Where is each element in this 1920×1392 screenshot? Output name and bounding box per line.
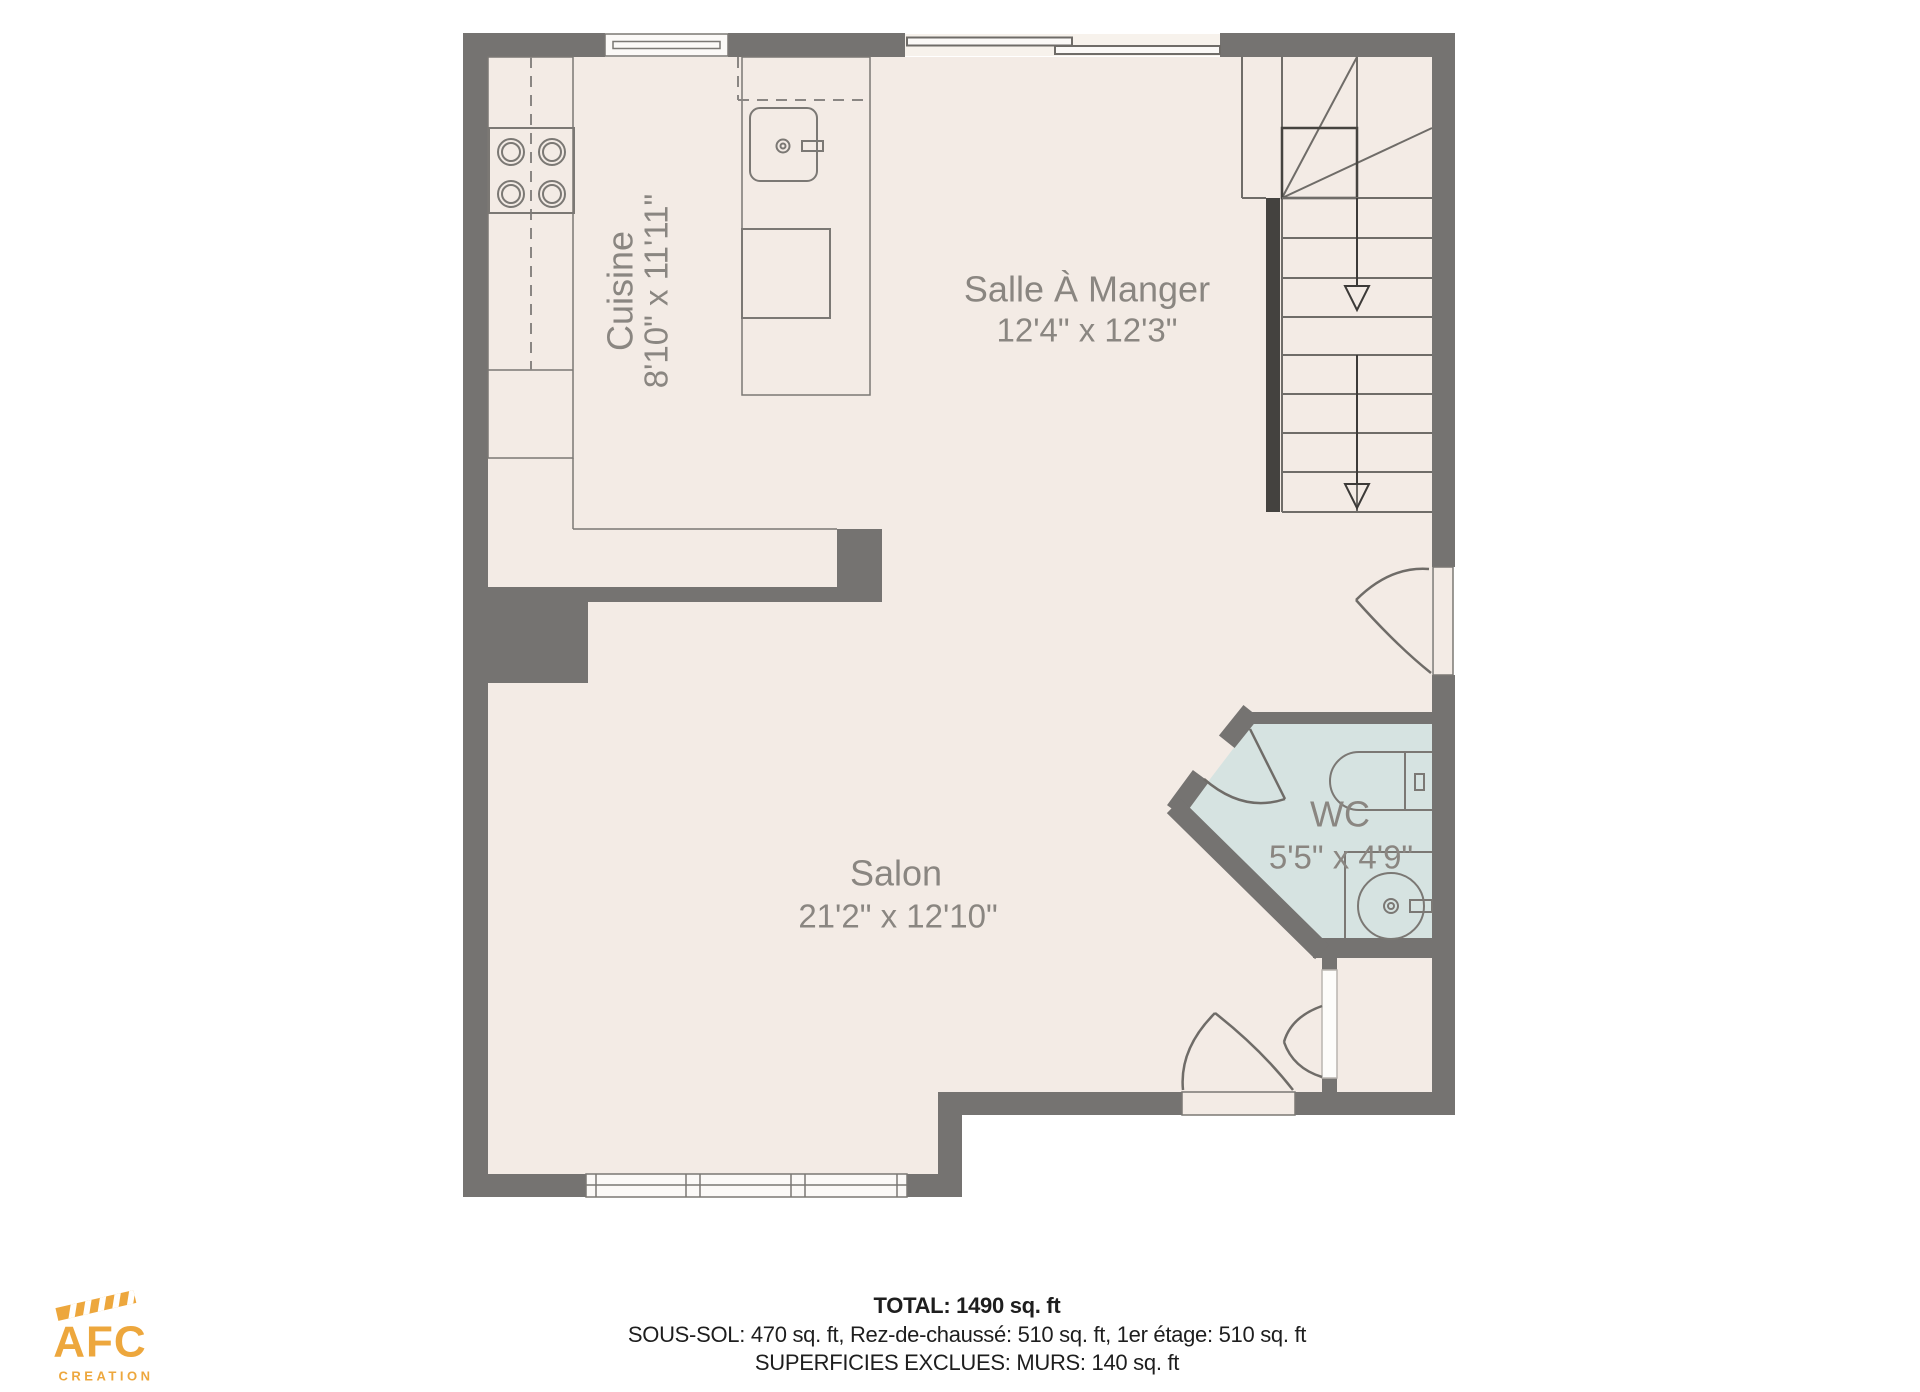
salon-label: Salon bbox=[850, 853, 942, 894]
dining-label: Salle À Manger bbox=[964, 269, 1210, 310]
stair-rail bbox=[1266, 198, 1280, 512]
summary-excluded: SUPERFICIES EXCLUES: MURS: 140 sq. ft bbox=[7, 1349, 1920, 1378]
salon-dims: 21'2" x 12'10" bbox=[798, 898, 997, 935]
summary-levels: SOUS-SOL: 470 sq. ft, Rez-de-chaussé: 51… bbox=[7, 1321, 1920, 1350]
floor-plan-drawing: Cuisine 8'10" x 11'11" Salle À Manger 12… bbox=[0, 0, 1920, 1392]
dining-sliding-window bbox=[905, 34, 1220, 56]
kitchen-label: Cuisine bbox=[600, 231, 641, 351]
kitchen-window bbox=[605, 34, 728, 56]
wc-dims: 5'5" x 4'9" bbox=[1269, 839, 1413, 876]
summary-total: TOTAL: 1490 sq. ft bbox=[7, 1292, 1920, 1321]
dining-dims: 12'4" x 12'3" bbox=[997, 312, 1178, 349]
floor-area bbox=[488, 57, 1432, 1174]
salon-window bbox=[586, 1174, 907, 1197]
area-summary: TOTAL: 1490 sq. ft SOUS-SOL: 470 sq. ft,… bbox=[7, 1292, 1920, 1378]
floor-plan-page: Cuisine 8'10" x 11'11" Salle À Manger 12… bbox=[0, 0, 1920, 1392]
kitchen-dims: 8'10" x 11'11" bbox=[638, 194, 675, 388]
wc-label: WC bbox=[1310, 794, 1370, 835]
